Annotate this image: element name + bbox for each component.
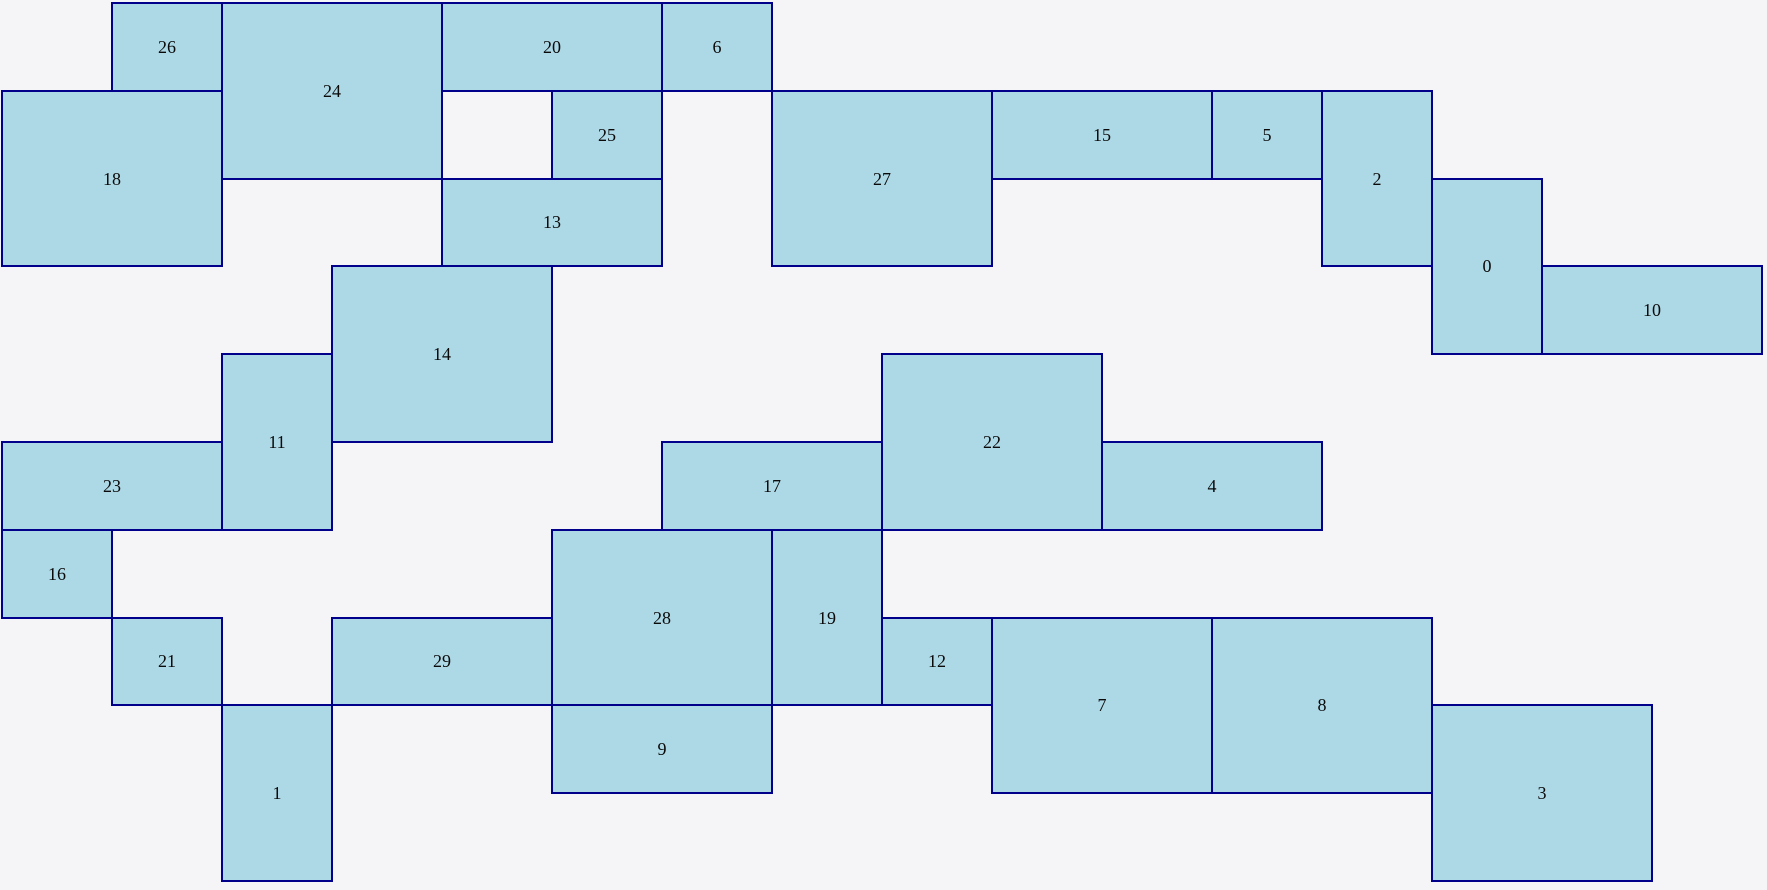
rect-label: 28 [653,609,671,627]
rect-17: 17 [661,441,883,531]
rect-label: 17 [763,477,781,495]
rect-label: 12 [928,652,946,670]
rect-19: 19 [771,529,883,707]
rect-20: 20 [441,2,663,92]
rect-label: 23 [103,477,121,495]
rect-label: 22 [983,433,1001,451]
rect-label: 25 [598,126,616,144]
rect-label: 3 [1538,784,1547,802]
rect-9: 9 [551,704,773,794]
rect-label: 10 [1643,301,1661,319]
rect-28: 28 [551,529,773,707]
rect-label: 14 [433,345,451,363]
rect-18: 18 [1,90,223,268]
rect-label: 16 [48,565,66,583]
rect-24: 24 [221,2,443,180]
rect-12: 12 [881,617,993,707]
rect-7: 7 [991,617,1213,795]
rect-14: 14 [331,265,553,443]
rect-15: 15 [991,90,1213,180]
rect-label: 18 [103,170,121,188]
rect-label: 7 [1098,696,1107,714]
rect-10: 10 [1541,265,1763,355]
rect-8: 8 [1211,617,1433,795]
rect-label: 20 [543,38,561,56]
rect-27: 27 [771,90,993,268]
rect-29: 29 [331,617,553,707]
rect-label: 27 [873,170,891,188]
rect-4: 4 [1101,441,1323,531]
rect-16: 16 [1,529,113,619]
rect-11: 11 [221,353,333,531]
rect-label: 5 [1263,126,1272,144]
rect-label: 26 [158,38,176,56]
rect-label: 21 [158,652,176,670]
rect-label: 29 [433,652,451,670]
rect-label: 19 [818,609,836,627]
rect-label: 8 [1318,696,1327,714]
rect-label: 2 [1373,170,1382,188]
rect-label: 13 [543,213,561,231]
rect-21: 21 [111,617,223,707]
rect-25: 25 [551,90,663,180]
packing-canvas: 0123456789101112131415161718192021222324… [0,0,1767,890]
rect-2: 2 [1321,90,1433,268]
rect-label: 15 [1093,126,1111,144]
rect-label: 9 [658,740,667,758]
rect-label: 1 [273,784,282,802]
rect-22: 22 [881,353,1103,531]
rect-label: 6 [713,38,722,56]
rect-label: 0 [1483,257,1492,275]
rect-23: 23 [1,441,223,531]
rect-0: 0 [1431,178,1543,356]
rect-13: 13 [441,178,663,268]
rect-6: 6 [661,2,773,92]
rect-1: 1 [221,704,333,882]
rect-label: 11 [268,433,285,451]
rect-26: 26 [111,2,223,92]
rect-label: 24 [323,82,341,100]
rect-label: 4 [1208,477,1217,495]
rect-5: 5 [1211,90,1323,180]
rect-3: 3 [1431,704,1653,882]
